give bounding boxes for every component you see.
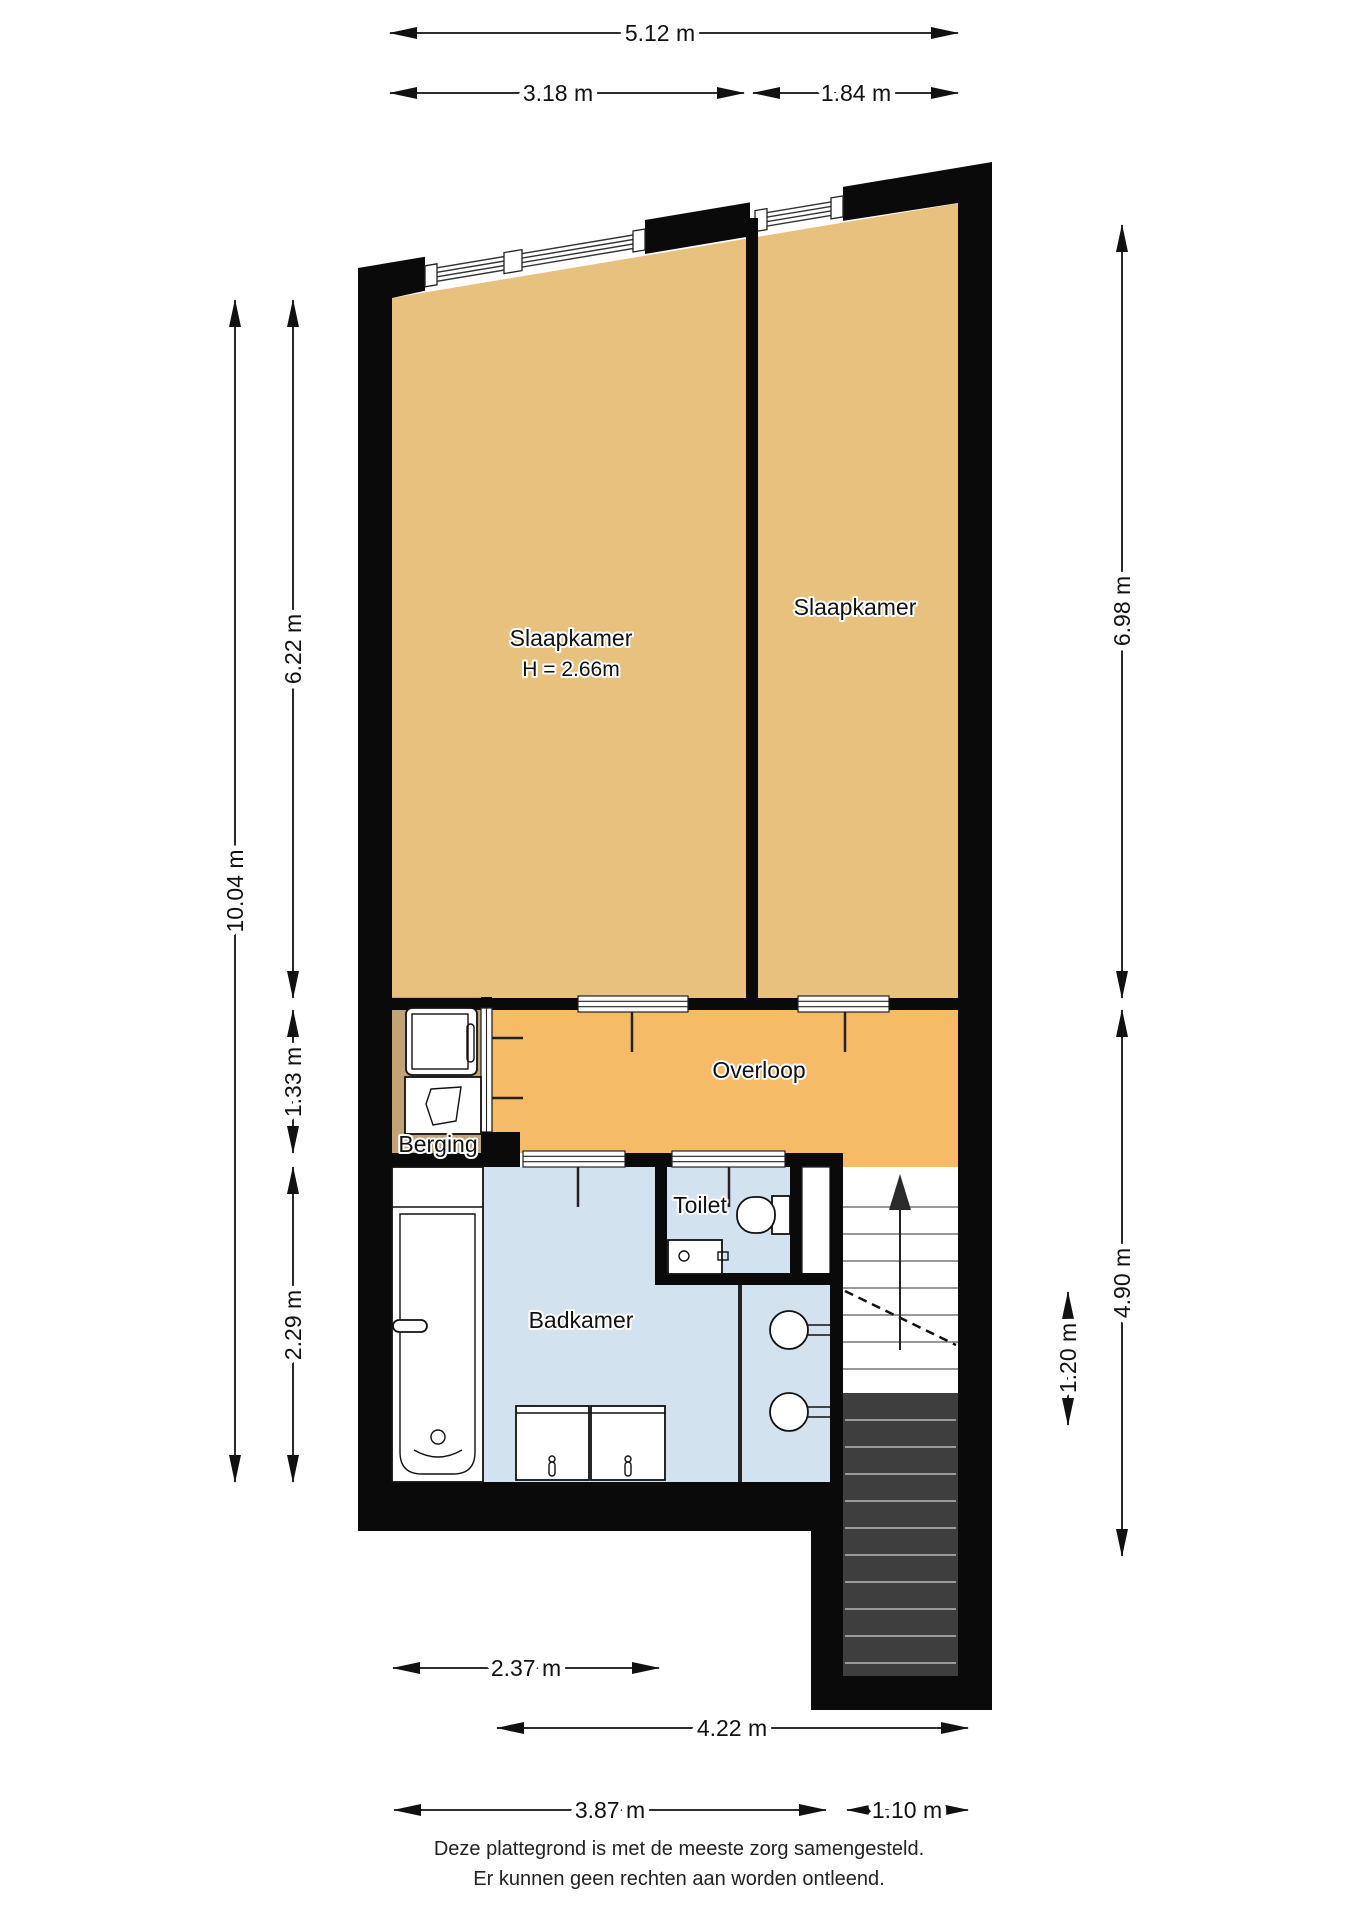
room-badkamer-floor-upper [483, 1167, 655, 1285]
dimension-depth-badkamer: 2.29 m [280, 1167, 306, 1482]
dimension-depth-right-lower: 4.90 m [1109, 1010, 1135, 1556]
dimension-stairwell: 1.20 m [1055, 1292, 1081, 1425]
room-height-note: H = 2.66m [522, 658, 619, 681]
disclaimer-line-1: Deze plattegrond is met de meeste zorg s… [434, 1838, 924, 1860]
wall-basin-partition [738, 1285, 742, 1482]
wall-toilet-east [790, 1167, 802, 1285]
dimension-depth-right-upper: 6.98 m [1109, 225, 1135, 998]
shaft-niche [802, 1167, 830, 1278]
svg-text:3.18 m: 3.18 m [523, 80, 593, 106]
washing-machine-icon [406, 1008, 477, 1075]
dimension-height-total: 10.04 m [222, 300, 248, 1482]
disclaimer-line-2: Er kunnen geen rechten aan worden ontlee… [473, 1868, 884, 1890]
vanity-cabinet-icon [516, 1406, 589, 1480]
room-label-badkamer: Badkamer [529, 1307, 634, 1333]
boiler-icon [405, 1077, 481, 1134]
room-label-slaapkamer-2: Slaapkamer [794, 594, 917, 620]
svg-text:10.04 m: 10.04 m [222, 849, 248, 932]
svg-text:1.33 m: 1.33 m [280, 1047, 306, 1117]
wall-bedroom-divider [746, 218, 758, 998]
floorplan-canvas: Slaapkamer H = 2.66m Slaapkamer Overloop… [0, 0, 1358, 1920]
staircase [843, 1167, 958, 1676]
wall-bedrooms-south-b [688, 998, 798, 1010]
svg-text:3.87 m: 3.87 m [575, 1797, 645, 1823]
svg-text:1.84 m: 1.84 m [821, 80, 891, 106]
room-label-overloop: Overloop [712, 1057, 805, 1083]
wall-bedrooms-south-c [889, 998, 958, 1010]
stairs-lower-flight [843, 1393, 958, 1676]
wall-toilet-west [655, 1167, 667, 1285]
disclaimer: Deze plattegrond is met de meeste zorg s… [434, 1838, 924, 1890]
dimension-width-bottom-total: 4.22 m [497, 1715, 968, 1741]
dimension-depth-slaapkamers: 6.22 m [280, 300, 306, 998]
svg-text:5.12 m: 5.12 m [625, 20, 695, 46]
room-label-slaapkamer-1: Slaapkamer [510, 625, 633, 651]
hand-sink-icon [668, 1240, 728, 1274]
dimension-width-badkamer: 2.37 m [393, 1655, 659, 1681]
svg-text:2.37 m: 2.37 m [491, 1655, 561, 1681]
wall-overloop-south-a [625, 1153, 672, 1167]
svg-text:6.98 m: 6.98 m [1109, 576, 1135, 646]
svg-text:1.20 m: 1.20 m [1055, 1323, 1081, 1393]
svg-text:2.29 m: 2.29 m [280, 1290, 306, 1360]
dimension-width-slaapkamer-2: 1.84 m [753, 80, 958, 106]
floorplan-page: Slaapkamer H = 2.66m Slaapkamer Overloop… [0, 0, 1358, 1920]
svg-text:4.90 m: 4.90 m [1109, 1248, 1135, 1318]
dimension-width-stairwell: 1.10 m [847, 1797, 968, 1823]
bathtub-icon [392, 1167, 483, 1482]
dimension-width-bottom-left: 3.87 m [394, 1797, 826, 1823]
room-label-toilet: Toilet [673, 1192, 727, 1218]
vanity-cabinet-icon [591, 1406, 665, 1480]
wall-stairwell-west [830, 1167, 843, 1710]
svg-text:1.10 m: 1.10 m [872, 1797, 942, 1823]
dimension-width-total: 5.12 m [390, 20, 958, 46]
wall-berging-corner [481, 1132, 520, 1167]
toilet-icon [737, 1196, 790, 1234]
window-jamb-icon [831, 196, 843, 219]
wall-stairwell-bottom [843, 1676, 992, 1710]
dimension-width-slaapkamer-1: 3.18 m [390, 80, 744, 106]
wall-overloop-south-b [785, 1153, 843, 1167]
svg-text:6.22 m: 6.22 m [280, 614, 306, 684]
wall-bottom-main [358, 1482, 811, 1531]
window-jamb-icon [633, 229, 645, 252]
svg-text:4.22 m: 4.22 m [697, 1715, 767, 1741]
window-mullion-icon [504, 250, 522, 274]
dimension-depth-berging: 1.33 m [280, 1010, 306, 1153]
window-jamb-icon [425, 264, 437, 287]
room-slaapkamer-1-floor [392, 239, 746, 998]
room-label-berging: Berging [398, 1131, 477, 1157]
